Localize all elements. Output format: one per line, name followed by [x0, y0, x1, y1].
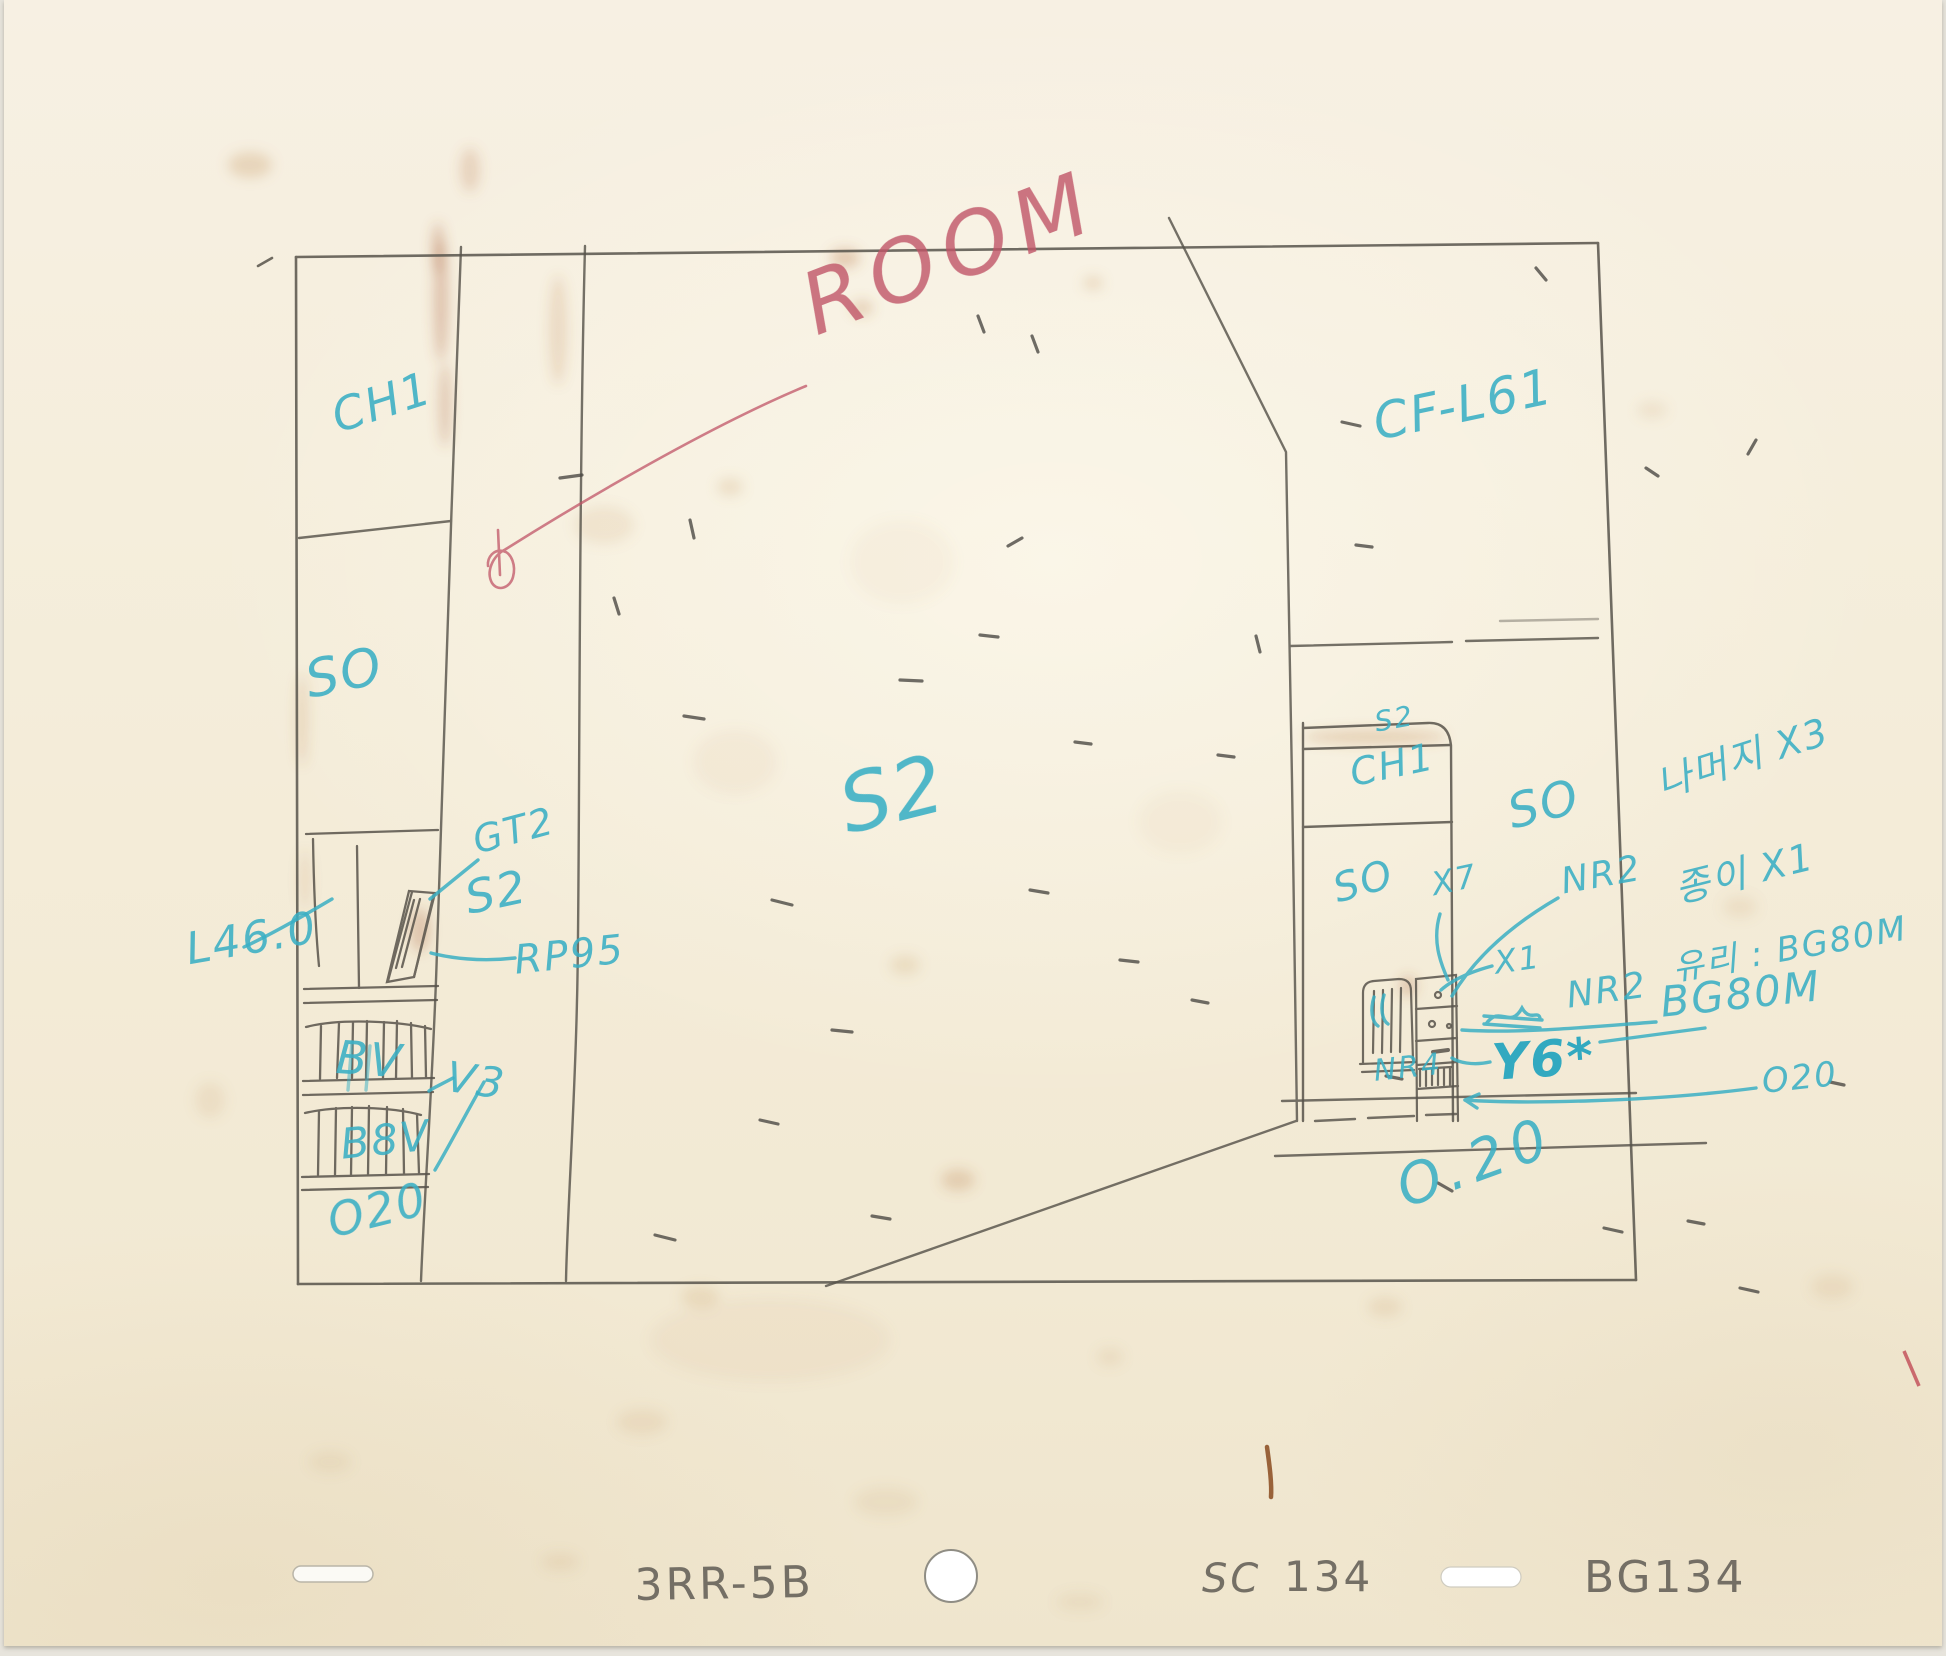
- peg-hole-left: [293, 1566, 373, 1582]
- color-note-b8v: B8V: [338, 1111, 433, 1169]
- red-leader-and-loop: [488, 386, 806, 588]
- scanned-layout-drawing: ROOM CH1 SO L46.0 GT2 S2 RP95 BV V3 B8V …: [0, 0, 1946, 1656]
- brown-ink-mark: [1267, 1447, 1271, 1497]
- red-edge-tick: [1904, 1351, 1919, 1386]
- color-note-s2-door: S2: [1372, 699, 1417, 738]
- color-note-y6: Y6*: [1490, 1027, 1597, 1092]
- footer-bg-number: BG134: [1584, 1552, 1747, 1603]
- color-note-nr4: NR4: [1372, 1047, 1444, 1089]
- peg-hole-center: [925, 1550, 977, 1602]
- blue-scribble-crossout: [1484, 1008, 1542, 1028]
- color-note-bv-books: BV: [334, 1030, 405, 1089]
- color-note-x1: X1: [1492, 938, 1543, 982]
- color-note-o20-floor-small: O20: [1760, 1054, 1840, 1102]
- peg-hole-right: [1441, 1567, 1521, 1587]
- color-note-v3: V3: [443, 1052, 509, 1109]
- footer-episode-code: 3RR-5B: [634, 1557, 814, 1611]
- footer-sc-label: SC: [1202, 1556, 1261, 1602]
- footer-scene-number: 134: [1284, 1552, 1373, 1601]
